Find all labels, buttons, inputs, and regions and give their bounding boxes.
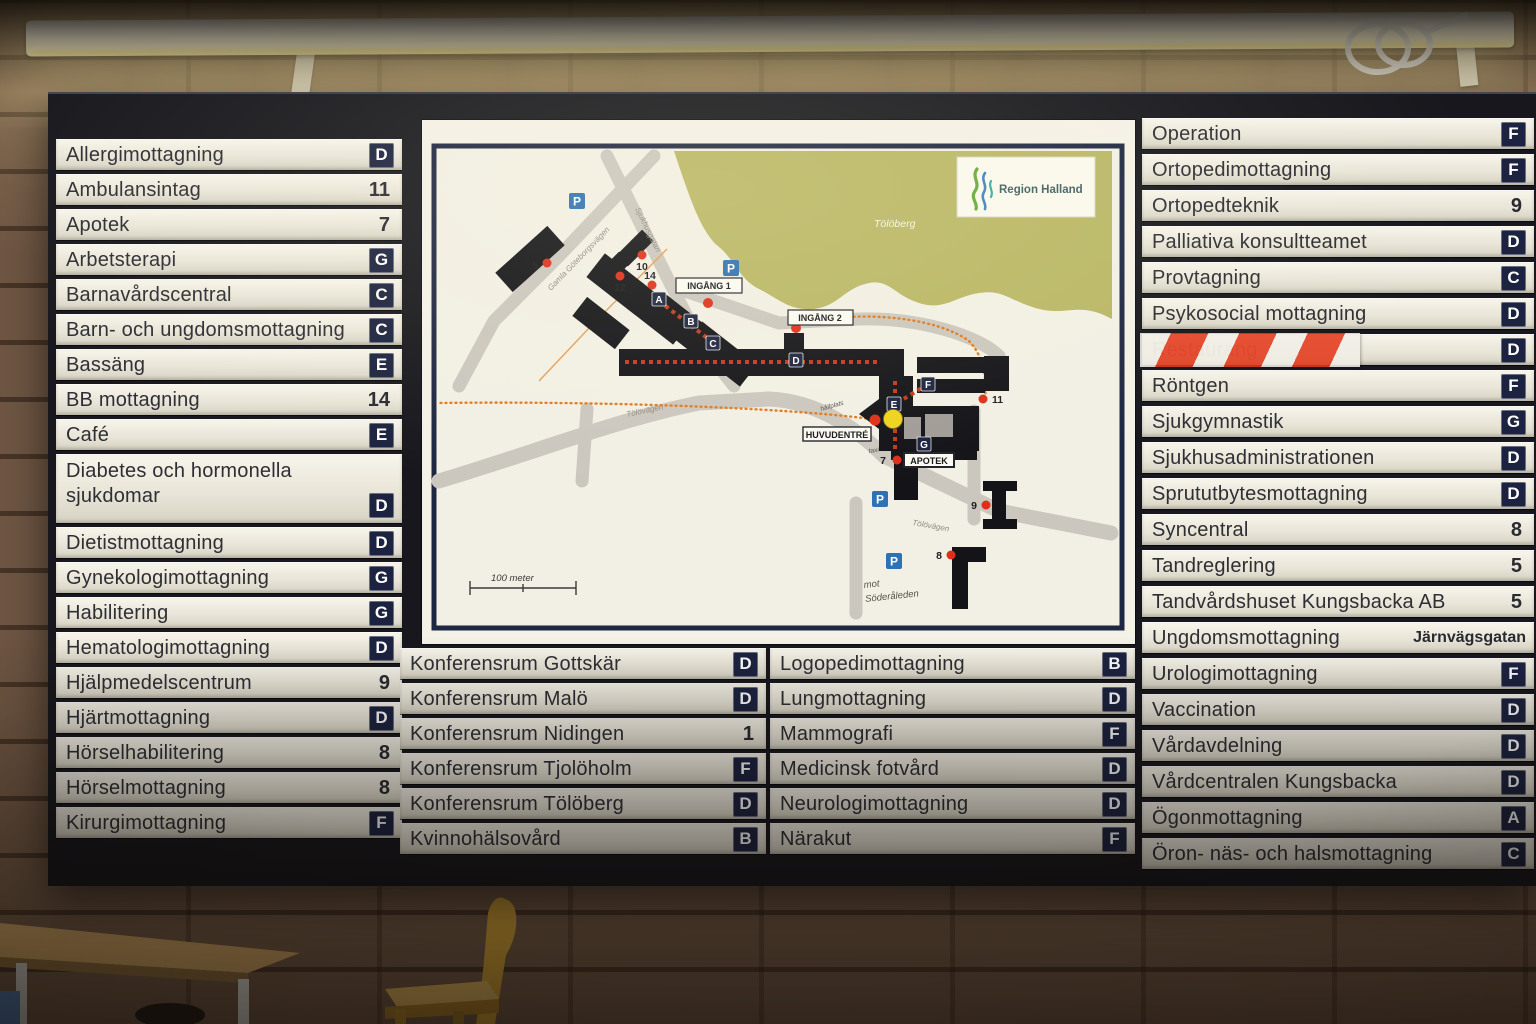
courtyards [904, 414, 953, 439]
location-badge: F [1102, 827, 1127, 852]
location-badge: D [1102, 792, 1127, 817]
svg-text:A: A [655, 295, 662, 306]
directory-row: KvinnohälsovårdB [400, 823, 766, 854]
svg-text:8: 8 [936, 550, 942, 562]
svg-text:INGÅNG 1: INGÅNG 1 [687, 281, 731, 291]
directory-row: Tandreglering5 [1142, 550, 1534, 581]
directory-row: Ambulansintag11 [56, 174, 402, 205]
fluorescent-light-fixture [26, 11, 1514, 56]
photo-of-hospital-directory: { "directory": { "left": [ {"label":"All… [0, 0, 1536, 1024]
logo-text: Region Halland [999, 184, 1083, 196]
row-label: Neurologimottagning [780, 792, 1102, 817]
location-number: 5 [1511, 591, 1526, 614]
row-label: Provtagning [1152, 266, 1501, 291]
directory-row: Hörselmottagning8 [56, 772, 402, 803]
area-label: Tölöberg [874, 218, 916, 230]
location-badge: C [369, 283, 394, 308]
location-badge: C [369, 318, 394, 343]
location-badge: D [733, 652, 758, 677]
directory-row: Vårdcentralen KungsbackaD [1142, 766, 1534, 797]
location-number: 8 [1511, 519, 1526, 542]
location-badge: D [369, 493, 394, 518]
svg-text:14: 14 [644, 270, 656, 282]
region-halland-logo: Region Halland [957, 157, 1095, 217]
location-badge: D [369, 531, 394, 556]
parking-icon: P [727, 262, 735, 276]
location-badge: D [369, 706, 394, 731]
row-label: Konferensrum Tjolöholm [410, 757, 733, 782]
row-label: Ögonmottagning [1152, 806, 1501, 831]
directory-row: VaccinationD [1142, 694, 1534, 725]
location-badge: D [1501, 770, 1526, 795]
directory-row: LungmottagningD [770, 683, 1135, 714]
location-badge: D [1501, 446, 1526, 471]
location-badge: D [369, 636, 394, 661]
location-badge: D [1501, 698, 1526, 723]
row-label: Syncentral [1152, 518, 1511, 543]
directory-panel-right: OperationF OrtopedimottagningF Ortopedte… [1142, 118, 1534, 874]
location-badge: C [1501, 266, 1526, 291]
directory-row: KirurgimottagningF [56, 807, 402, 838]
directory-row: SjukgymnastikG [1142, 406, 1534, 437]
directory-row: AllergimottagningD [56, 139, 402, 170]
directory-row: Konferensrum GottskärD [400, 648, 766, 679]
directory-row: OrtopedimottagningF [1142, 154, 1534, 185]
row-label: Diabetes och hormonella sjukdomar [66, 459, 316, 509]
location-badge: F [1501, 122, 1526, 147]
directory-row: UngdomsmottagningJärnvägsgatan [1142, 622, 1534, 653]
svg-text:11: 11 [992, 394, 1003, 406]
row-label: Hjärtmottagning [66, 706, 369, 731]
directory-row: Palliativa konsultteametD [1142, 226, 1534, 257]
row-label: Hematologimottagning [66, 636, 369, 661]
svg-text:F: F [925, 380, 931, 391]
svg-text:C: C [709, 339, 716, 350]
directory-row: MammografiF [770, 718, 1135, 749]
directory-row: Syncentral8 [1142, 514, 1534, 545]
directory-row: HematologimottagningD [56, 632, 402, 663]
directory-row: Konferensrum MalöD [400, 683, 766, 714]
row-label: Operation [1152, 122, 1501, 147]
directory-panel-left: AllergimottagningD Ambulansintag11 Apote… [56, 139, 402, 842]
directory-row: SjukhusadministrationenD [1142, 442, 1534, 473]
row-label: Café [66, 423, 369, 448]
location-badge: B [733, 827, 758, 852]
location-badge: F [1501, 374, 1526, 399]
directory-row: HabiliteringG [56, 597, 402, 628]
row-label: Psykosocial mottagning [1152, 302, 1501, 327]
location-number: 14 [368, 389, 394, 412]
directory-row: CaféE [56, 419, 402, 450]
directory-row: ArbetsterapiG [56, 244, 402, 275]
directory-row: ÖgonmottagningA [1142, 802, 1534, 833]
row-label: Ortopedteknik [1152, 194, 1511, 219]
location-number: 9 [1511, 195, 1526, 218]
directory-row: Ortopedteknik9 [1142, 190, 1534, 221]
location-badge: B [1102, 652, 1127, 677]
directory-row: Diabetes och hormonella sjukdomarD [56, 454, 402, 523]
hazard-tape [1140, 333, 1360, 367]
row-label: Ungdomsmottagning [1152, 626, 1413, 651]
location-number: 9 [379, 672, 394, 695]
row-label: Ambulansintag [66, 178, 369, 203]
directory-row: Barn- och ungdomsmottagningC [56, 314, 402, 345]
location-badge: D [1501, 338, 1526, 363]
svg-text:12: 12 [614, 282, 626, 294]
location-badge: F [1501, 662, 1526, 687]
row-label: Hörselmottagning [66, 776, 379, 801]
directory-row: Medicinsk fotvårdD [770, 753, 1135, 784]
directory-row: GynekologimottagningG [56, 562, 402, 593]
svg-text:5: 5 [532, 260, 538, 272]
location-badge: A [1501, 806, 1526, 831]
row-label: Barnavårdscentral [66, 283, 369, 308]
location-number: 11 [369, 179, 394, 202]
location-badge: D [733, 792, 758, 817]
location-badge: E [369, 423, 394, 448]
location-badge: E [369, 353, 394, 378]
directory-row: Hjälpmedelscentrum9 [56, 667, 402, 698]
location-number: 8 [379, 777, 394, 800]
svg-text:INGÅNG 2: INGÅNG 2 [798, 313, 842, 323]
location-badge: F [369, 811, 394, 836]
scale-label: 100 meter [491, 573, 535, 584]
row-label: Konferensrum Malö [410, 687, 733, 712]
row-label: Barn- och ungdomsmottagning [66, 318, 369, 343]
sign-board: AllergimottagningD Ambulansintag11 Apote… [48, 92, 1536, 886]
svg-text:taxi: taxi [868, 447, 880, 455]
directory-row: BarnavårdscentralC [56, 279, 402, 310]
desk [0, 895, 330, 1024]
you-are-here-marker [884, 410, 903, 429]
row-label: Urologimottagning [1152, 662, 1501, 687]
directory-row: UrologimottagningF [1142, 658, 1534, 689]
row-label: Öron- näs- och halsmottagning [1152, 842, 1501, 867]
location-badge: D [1102, 757, 1127, 782]
svg-text:D: D [792, 356, 799, 367]
directory-row: BB mottagning14 [56, 384, 402, 415]
svg-text:B: B [687, 317, 694, 328]
directory-row: ProvtagningC [1142, 262, 1534, 293]
directory-row: DietistmottagningD [56, 527, 402, 558]
location-badge: G [369, 248, 394, 273]
row-label: Konferensrum Tölöberg [410, 792, 733, 817]
svg-text:7: 7 [880, 455, 886, 467]
row-label: Mammografi [780, 722, 1102, 747]
directory-row: Konferensrum Nidingen1 [400, 718, 766, 749]
row-label: Logopedimottagning [780, 652, 1102, 677]
directory-row: BassängE [56, 349, 402, 380]
row-label: Kirurgimottagning [66, 811, 369, 836]
directory-row: Psykosocial mottagningD [1142, 298, 1534, 329]
directory-row: LogopedimottagningB [770, 648, 1135, 679]
location-badge: F [733, 757, 758, 782]
row-label: Tandreglering [1152, 554, 1511, 579]
row-label: Sjukhusadministrationen [1152, 446, 1501, 471]
location-number: 8 [379, 742, 394, 765]
row-label: Konferensrum Nidingen [410, 722, 743, 747]
directory-row-taped: RestaurangD [1142, 334, 1534, 365]
row-label: Hörselhabilitering [66, 741, 379, 766]
site-map-panel: Gamla Göteborgsvägen Sjukhusgatan Tölövä… [422, 120, 1135, 644]
directory-row: SprututbytesmottagningD [1142, 478, 1534, 509]
row-label: Hjälpmedelscentrum [66, 671, 379, 696]
location-badge: D [1501, 230, 1526, 255]
directory-panel-mid2: LogopedimottagningB LungmottagningD Mamm… [770, 648, 1135, 858]
row-label: BB mottagning [66, 388, 368, 413]
row-label: Arbetsterapi [66, 248, 369, 273]
svg-text:9: 9 [971, 500, 977, 512]
directory-row: OperationF [1142, 118, 1534, 149]
directory-row: RöntgenF [1142, 370, 1534, 401]
svg-text:mot: mot [863, 578, 880, 591]
row-label: Gynekologimottagning [66, 566, 369, 591]
row-label: Vaccination [1152, 698, 1501, 723]
directory-row: Hörselhabilitering8 [56, 737, 402, 768]
directory-row: Konferensrum TölöbergD [400, 788, 766, 819]
row-label: Medicinsk fotvård [780, 757, 1102, 782]
row-label: Allergimottagning [66, 143, 369, 168]
svg-text:G: G [920, 440, 928, 451]
svg-text:HUVUDENTRÉ: HUVUDENTRÉ [806, 430, 869, 440]
location-badge: D [1501, 482, 1526, 507]
parking-icon: P [876, 493, 884, 507]
row-label: Habilitering [66, 601, 369, 626]
row-label: Apotek [66, 213, 379, 238]
directory-row: Konferensrum TjolöholmF [400, 753, 766, 784]
location-badge: F [1102, 722, 1127, 747]
directory-row: Apotek7 [56, 209, 402, 240]
location-badge: F [1501, 158, 1526, 183]
directory-row: HjärtmottagningD [56, 702, 402, 733]
parking-icon: P [573, 195, 581, 209]
location-badge: D [369, 143, 394, 168]
directory-row: Öron- näs- och halsmottagningC [1142, 838, 1534, 869]
row-label: Lungmottagning [780, 687, 1102, 712]
location-number: 5 [1511, 555, 1526, 578]
directory-row: NärakutF [770, 823, 1135, 854]
directory-row: Tandvårdshuset Kungsbacka AB5 [1142, 586, 1534, 617]
location-badge: C [1501, 842, 1526, 867]
site-map: Gamla Göteborgsvägen Sjukhusgatan Tölövä… [422, 120, 1135, 644]
directory-row: NeurologimottagningD [770, 788, 1135, 819]
location-number: 1 [743, 723, 758, 746]
location-number: 7 [379, 214, 394, 237]
location-badge: D [733, 687, 758, 712]
row-label: Bassäng [66, 353, 369, 378]
row-label: Palliativa konsultteamet [1152, 230, 1501, 255]
row-label: Tandvårdshuset Kungsbacka AB [1152, 590, 1511, 615]
location-badge: D [1501, 302, 1526, 327]
coiled-cable [1330, 6, 1470, 86]
row-label: Sprututbytesmottagning [1152, 482, 1501, 507]
chair [355, 893, 545, 1024]
location-badge: G [1501, 410, 1526, 435]
location-street-text: Järnvägsgatan [1413, 629, 1526, 647]
row-label: Närakut [780, 827, 1102, 852]
row-label: Vårdavdelning [1152, 734, 1501, 759]
location-badge: G [369, 601, 394, 626]
location-badge: D [1501, 734, 1526, 759]
row-label: Ortopedimottagning [1152, 158, 1501, 183]
row-label: Vårdcentralen Kungsbacka [1152, 770, 1501, 795]
location-badge: D [1102, 687, 1127, 712]
row-label: Kvinnohälsovård [410, 827, 733, 852]
parking-icon: P [890, 555, 898, 569]
location-badge: G [369, 566, 394, 591]
directory-row: VårdavdelningD [1142, 730, 1534, 761]
directory-panel-mid1: Konferensrum GottskärD Konferensrum Malö… [400, 648, 766, 858]
row-label: Konferensrum Gottskär [410, 652, 733, 677]
svg-text:APOTEK: APOTEK [910, 456, 948, 466]
row-label: Dietistmottagning [66, 531, 369, 556]
row-label: Röntgen [1152, 374, 1501, 399]
row-label: Sjukgymnastik [1152, 410, 1501, 435]
